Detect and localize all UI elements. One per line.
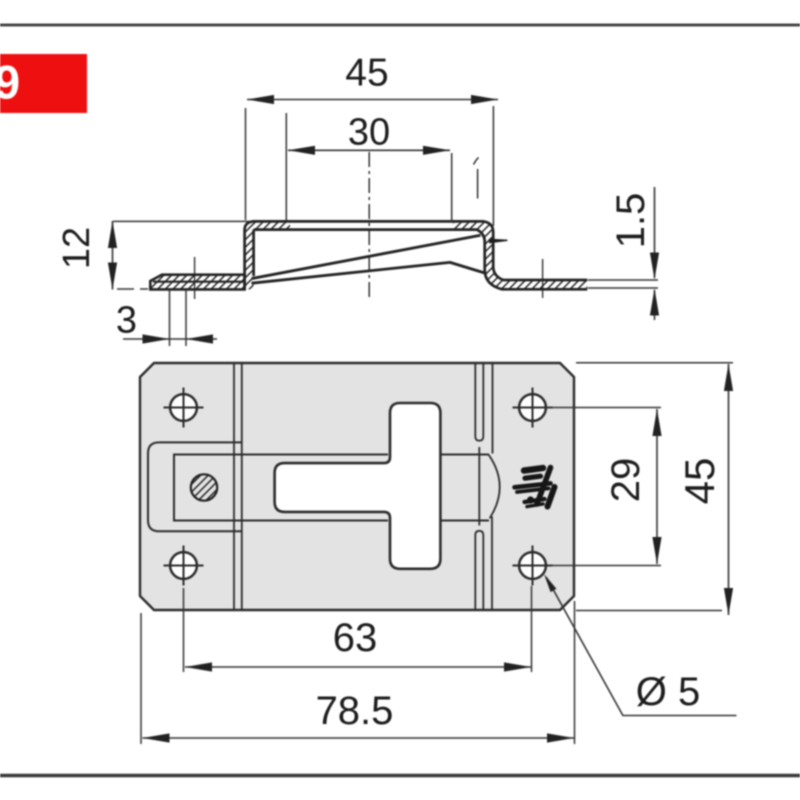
svg-text:12: 12 xyxy=(56,227,98,269)
svg-text:29: 29 xyxy=(604,458,648,503)
svg-text:45: 45 xyxy=(676,458,723,505)
svg-text:63: 63 xyxy=(333,616,378,660)
svg-text:9: 9 xyxy=(0,56,20,109)
svg-text:45: 45 xyxy=(345,52,388,95)
svg-text:Ø 5: Ø 5 xyxy=(636,670,700,714)
svg-text:3: 3 xyxy=(116,300,137,342)
svg-text:78.5: 78.5 xyxy=(316,689,394,733)
svg-text:30: 30 xyxy=(348,112,390,154)
svg-text:1.5: 1.5 xyxy=(609,193,653,249)
